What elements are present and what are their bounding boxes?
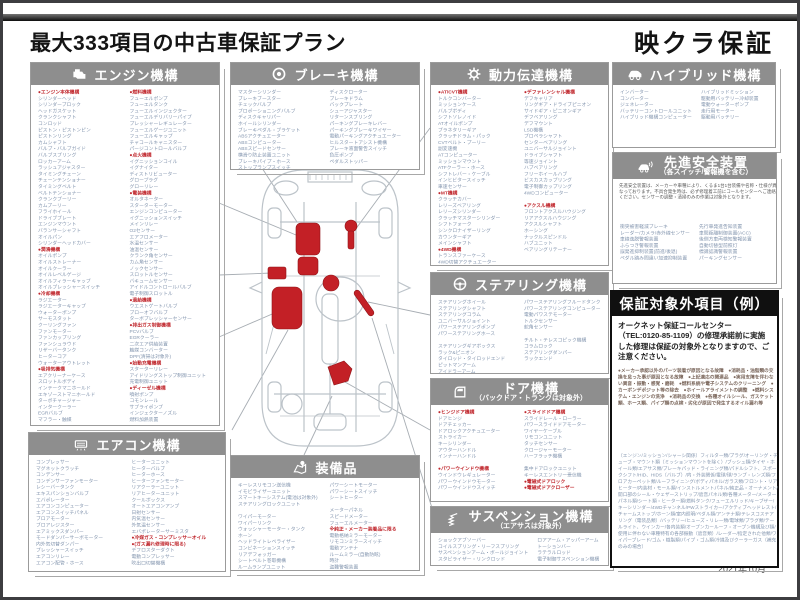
list-item: 標識認識警報装置 bbox=[699, 249, 769, 255]
hybrid-car-icon bbox=[627, 66, 643, 82]
list-item: 燃料加熱装置 bbox=[130, 417, 213, 423]
brake-header: ブレーキ機構 bbox=[231, 63, 419, 85]
suspension-title: サスペンション機構 bbox=[469, 510, 594, 524]
gear-icon bbox=[466, 66, 482, 82]
section-equipment: 装備品 キーレスリモコン送信機イモビライザーユニットスマートキーシステム(電池は… bbox=[230, 455, 420, 571]
list-item: ペダルストッパー bbox=[330, 159, 413, 165]
list-item: ベアリングリテーナー bbox=[524, 247, 601, 253]
suspension-subtitle: （エアサスは対象外） bbox=[496, 523, 566, 530]
list-item: 誤発進抑制装置(前進/後退) bbox=[620, 249, 690, 255]
section-hybrid: ハイブリッド機構 インバーターコンバータージェネレーターバッテリーコントロールユ… bbox=[612, 62, 776, 148]
section-brake: ブレーキ機構 マスターシリンダーブレーキブースターチェックバルブプロポーショニン… bbox=[230, 62, 420, 170]
exclusions-bullets: ●メーカー承認以外のパーツ装着が原因となる故障 ●消耗品・油脂類の交換を怠った事… bbox=[612, 364, 784, 406]
safety-list-col2: 先行車発進告知装置車間距離制御装置(ACC)後側方車両検知警報装置自動切替型前照… bbox=[699, 224, 769, 262]
list-item: ペダル踏み間違い加速抑制装置 bbox=[620, 255, 690, 261]
list-item: アイドラーアーム bbox=[438, 369, 515, 375]
powertrain-header: 動力伝達機構 bbox=[431, 63, 608, 85]
powertrain-list-col1: ●AT/CVT機構トルクコンバーターミッションケースバルブボディシフトソレノイド… bbox=[438, 90, 515, 266]
steering-list-col1: ステアリングホイールステアリングシャフトステアリングコラムユニバーサルジョイント… bbox=[438, 300, 515, 376]
safety-paragraph: 先進安全装置は、メーカーや車種により、くるま1台1台装備や名称・仕様が異なってお… bbox=[613, 179, 783, 200]
list-item: ●電磁式ドアクローザー bbox=[524, 485, 601, 491]
brake-list-col2: ディスクローターブレーキドラムバックプレートシューアジャスターリターンスプリング… bbox=[330, 90, 413, 172]
list-item: パワーウインドウスイッチ bbox=[438, 485, 515, 491]
exclusions-header: 保証対象外項目（例） bbox=[612, 292, 777, 316]
equipment-list-col1: キーレスリモコン送信機イモビライザーユニットスマートキーシステム(電池は対象外)… bbox=[238, 483, 321, 571]
equipment-list-col2: パワーシートモーターパワーシートスイッチシートヒーター メーターパネルスピードメ… bbox=[330, 483, 413, 571]
car-diagram bbox=[240, 164, 420, 454]
engine-title: エンジン機構 bbox=[94, 65, 178, 84]
steering-title: ステアリング機構 bbox=[475, 275, 587, 294]
warranty-poster: { "page": { "title": "最大333項目の中古車保証プラン",… bbox=[0, 0, 800, 600]
list-item: 先行車発進告知装置 bbox=[699, 224, 769, 230]
safety-subtitle: （各スイッチ/警報機を含む） bbox=[660, 169, 753, 176]
suspension-header: サスペンション機構 （エアサスは対象外） bbox=[431, 507, 608, 533]
list-item: ハイブリッド機構コンピューター bbox=[620, 115, 692, 121]
section-safety: 先進安全装置 （各スイッチ/警報機を含む） 先進安全装置は、メーカーや車種により… bbox=[612, 152, 777, 284]
exclusions-details: （エンジン/ミッション/シャーシ関係）フィルター類/プラグ/オーリング・チューブ… bbox=[612, 448, 784, 555]
door-header: ドア機構 （バックドア・トランクは対象外） bbox=[431, 379, 608, 405]
door-list-col2: ●スライドドア機構スライドレール・ローラーパワースライドドアモーターワイヤーケー… bbox=[524, 410, 601, 492]
aircon-header: エアコン機構 bbox=[29, 433, 225, 455]
hybrid-title: ハイブリッド機構 bbox=[650, 65, 762, 84]
safety-title: 先進安全装置 bbox=[664, 156, 748, 170]
suspension-list-col1: ショックアブソーバーコイルスプリング・リーフスプリングサスペンションアーム・ボー… bbox=[438, 538, 528, 563]
door-list-col1: ●ヒンジドア機構ドアヒンジドアチェッカードアロックアクチュエーターストライカーキ… bbox=[438, 410, 515, 492]
list-item: 電子制御サスペンション機構 bbox=[537, 556, 601, 562]
door-icon bbox=[452, 384, 468, 400]
section-suspension: サスペンション機構 （エアサスは対象外） ショックアブソーバーコイルスプリング・… bbox=[430, 506, 609, 566]
hybrid-list-col1: インバーターコンバータージェネレーターバッテリーコントロールユニットハイブリッド… bbox=[620, 90, 692, 121]
aircon-list-col1: コンプレッサーマグネットクラッチコンデンサーコンデンサーファンモーターレシーバー… bbox=[36, 460, 123, 567]
section-exclusions: 保証対象外項目（例） オークネット保証コールセンター（TEL:0120-85-1… bbox=[610, 290, 779, 568]
engine-list-col1: ●エンジン本体機構シリンダーヘッドシリンダーブロックヘッドガスケットクランクシャ… bbox=[38, 90, 121, 424]
engine-header: エンジン機構 bbox=[31, 63, 219, 85]
powertrain-list-col2: ●デファレンシャル機構デフキャリアリングギア・ドライブピニオンサイドギア・ピニオ… bbox=[524, 90, 601, 266]
exclusions-intro: オークネット保証コールセンター（TEL:0120-85-1109）の修理承諾前に… bbox=[612, 316, 777, 364]
brake-disc-icon bbox=[271, 66, 287, 82]
safety-header: 先進安全装置 （各スイッチ/警報機を含む） bbox=[613, 153, 776, 179]
list-item: 自動切替型前照灯 bbox=[699, 242, 769, 248]
top-divider-bar bbox=[0, 14, 800, 21]
list-item: ラックエンド bbox=[524, 356, 601, 362]
section-engine: エンジン機構 ●エンジン本体機構シリンダーヘッドシリンダーブロックヘッドガスケッ… bbox=[30, 62, 220, 426]
list-item: 吹出口切替機構 bbox=[132, 560, 219, 566]
brake-list-col1: マスターシリンダーブレーキブースターチェックバルブプロポーショニングバルブディス… bbox=[238, 90, 321, 172]
list-item: スタビライザー・リンクロッド bbox=[438, 556, 528, 562]
safety-car-icon bbox=[637, 158, 653, 174]
equipment-header: 装備品 bbox=[231, 456, 419, 478]
brand-logo: 映クラ保証 bbox=[634, 24, 774, 60]
steering-list-col2: パワーステアリングフルードタンクパワーステアリングコンピューター電動パワステモー… bbox=[524, 300, 601, 376]
aircon-list-col2: ヒーターユニットヒーターバルブヒーターホースヒーターファンモーターリアクーラーユ… bbox=[132, 460, 219, 567]
page-title: 最大333項目の中古車保証プラン bbox=[30, 27, 346, 57]
hybrid-list-col2: ハイブリッドミッション駆動用バッテリー冷却装置電動ウォーターポンプ走行用モーター… bbox=[701, 90, 768, 121]
list-item: ふらつき警報装置 bbox=[620, 242, 690, 248]
list-item: 衝突被害軽減ブレーキ bbox=[620, 224, 690, 230]
suspension-list-col2: ロアアーム・アッパーアームトーションバーラテラルロッド電子制御サスペンション機構 bbox=[537, 538, 601, 563]
door-title: ドア機構 bbox=[503, 382, 559, 396]
section-aircon: エアコン機構 コンプレッサーマグネットクラッチコンデンサーコンデンサーファンモー… bbox=[28, 432, 226, 572]
navigation-icon bbox=[292, 459, 308, 475]
spring-icon bbox=[446, 512, 462, 528]
engine-list-col2: ●燃料機構フューエルポンプフューエルタンクフューエルインジェクターフューエルデリ… bbox=[130, 90, 213, 424]
steering-header: ステアリング機構 bbox=[431, 273, 608, 295]
list-item: 車間距離制御装置(ACC) bbox=[699, 230, 769, 236]
hybrid-header: ハイブリッド機構 bbox=[613, 63, 775, 85]
powertrain-title: 動力伝達機構 bbox=[489, 65, 573, 84]
list-item: レーダー/カメラ/赤外線センサー bbox=[620, 230, 690, 236]
section-door: ドア機構 （バックドア・トランクは対象外） ●ヒンジドア機構ドアヒンジドアチェッ… bbox=[430, 378, 609, 502]
list-item: 4WD切替アクチュエーター bbox=[438, 260, 515, 266]
list-item: ルームランプユニット bbox=[238, 564, 321, 570]
steering-wheel-icon bbox=[452, 276, 468, 292]
list-item: パーキングセンサー bbox=[699, 255, 769, 261]
aircon-icon bbox=[73, 436, 89, 452]
list-item: マフラー・触媒 bbox=[38, 417, 121, 423]
section-powertrain: 動力伝達機構 ●AT/CVT機構トルクコンバーターミッションケースバルブボディシ… bbox=[430, 62, 609, 266]
list-item: 駆動用バッテリー bbox=[701, 115, 768, 121]
list-item: 車線逸脱警報装置 bbox=[620, 236, 690, 242]
engine-icon bbox=[71, 66, 87, 82]
safety-list-col1: 衝突被害軽減ブレーキレーダー/カメラ/赤外線センサー車線逸脱警報装置ふらつき警報… bbox=[620, 224, 690, 262]
list-item: 盗難警報装置 bbox=[330, 564, 413, 570]
aircon-title: エアコン機構 bbox=[96, 435, 180, 454]
door-subtitle: （バックドア・トランクは対象外） bbox=[475, 395, 587, 402]
list-item: ストップランプスイッチ bbox=[238, 165, 321, 171]
list-item: 後側方車両検知警報装置 bbox=[699, 236, 769, 242]
brake-title: ブレーキ機構 bbox=[294, 65, 378, 84]
section-steering: ステアリング機構 ステアリングホイールステアリングシャフトステアリングコラムユニ… bbox=[430, 272, 609, 374]
list-item: エアコン配管・ホース bbox=[36, 560, 123, 566]
equipment-title: 装備品 bbox=[315, 458, 357, 477]
